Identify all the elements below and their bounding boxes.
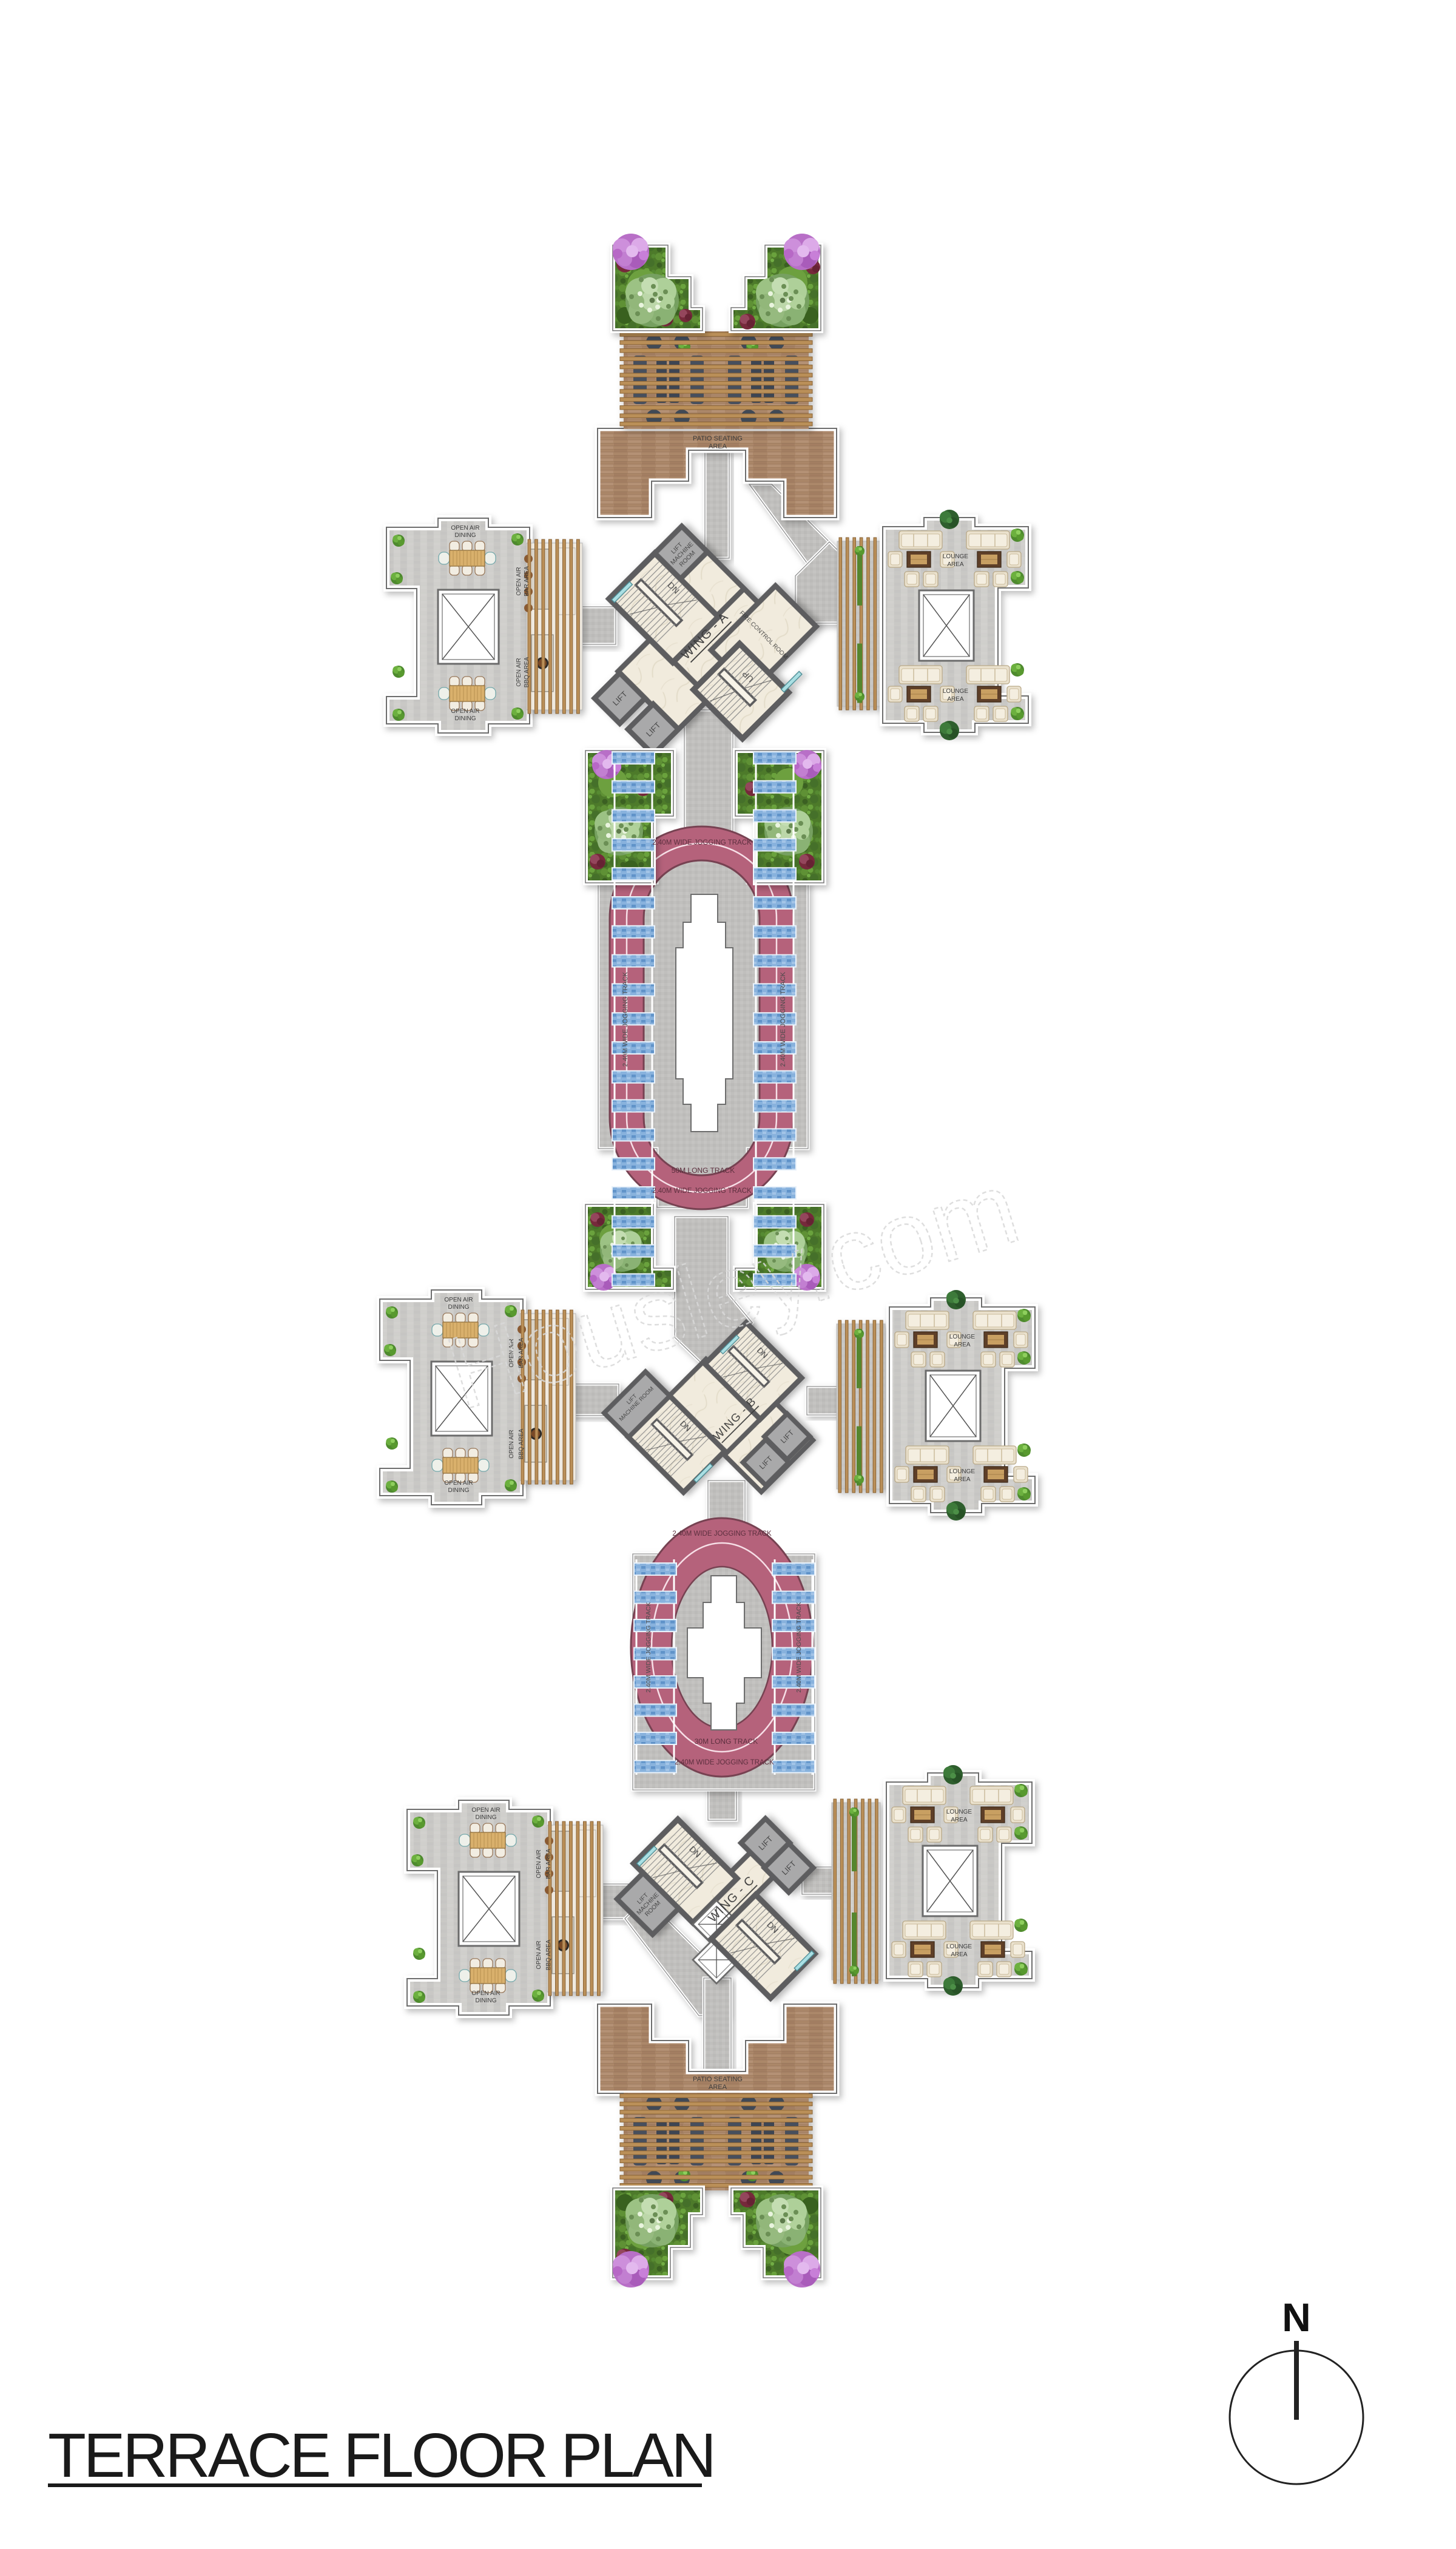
svg-text:TERRACE FLOOR PLAN: TERRACE FLOOR PLAN — [48, 2420, 714, 2490]
svg-text:AREA: AREA — [709, 443, 727, 450]
svg-text:LOUNGE: LOUNGE — [946, 1809, 972, 1815]
svg-text:BAR AREA: BAR AREA — [545, 1849, 552, 1879]
svg-text:LOUNGE: LOUNGE — [949, 1334, 976, 1340]
svg-text:OPEN AIR: OPEN AIR — [451, 525, 479, 532]
svg-text:2.40M WIDE JOGGING TRACK: 2.40M WIDE JOGGING TRACK — [622, 971, 629, 1067]
svg-text:OPEN AIR: OPEN AIR — [444, 1297, 473, 1303]
svg-text:30M LONG TRACK: 30M LONG TRACK — [695, 1737, 758, 1746]
svg-text:LOUNGE: LOUNGE — [946, 1943, 972, 1950]
svg-text:OPEN AIR: OPEN AIR — [516, 658, 522, 686]
svg-text:DINING: DINING — [455, 715, 476, 722]
svg-text:PATIO SEATING: PATIO SEATING — [693, 2076, 743, 2083]
svg-text:LOUNGE: LOUNGE — [943, 688, 969, 695]
svg-text:2.40M WIDE JOGGING TRACK: 2.40M WIDE JOGGING TRACK — [675, 1759, 774, 1766]
svg-text:DINING: DINING — [476, 1997, 497, 2004]
svg-text:N: N — [1282, 2295, 1311, 2340]
svg-text:BBQ AREA: BBQ AREA — [545, 1939, 552, 1970]
svg-text:OPEN AIR: OPEN AIR — [451, 708, 479, 715]
svg-text:BAR AREA: BAR AREA — [524, 566, 530, 596]
svg-text:AREA: AREA — [954, 1342, 971, 1348]
svg-text:BBQ AREA: BBQ AREA — [524, 657, 530, 687]
svg-text:AREA: AREA — [709, 2084, 727, 2091]
svg-text:BBQ AREA: BBQ AREA — [518, 1428, 525, 1459]
svg-text:2.40M WIDE JOGGING TRACK: 2.40M WIDE JOGGING TRACK — [645, 1602, 652, 1692]
svg-text:OPEN AIR: OPEN AIR — [536, 1849, 542, 1878]
svg-text:2.40M WIDE JOGGING TRACK: 2.40M WIDE JOGGING TRACK — [780, 971, 787, 1067]
svg-text:AREA: AREA — [947, 561, 964, 568]
svg-text:OPEN AIR: OPEN AIR — [471, 1990, 500, 1997]
svg-text:DINING: DINING — [455, 532, 476, 539]
svg-text:AREA: AREA — [951, 1817, 968, 1823]
svg-text:2.40M WIDE JOGGING TRACK: 2.40M WIDE JOGGING TRACK — [672, 1530, 772, 1538]
svg-text:OPEN AIR: OPEN AIR — [508, 1430, 515, 1458]
svg-text:DINING: DINING — [448, 1487, 470, 1494]
svg-text:OPEN AIR: OPEN AIR — [516, 567, 522, 595]
svg-text:LOUNGE: LOUNGE — [943, 553, 969, 560]
svg-text:OPEN AIR: OPEN AIR — [444, 1480, 473, 1487]
svg-text:OPEN AIR: OPEN AIR — [471, 1807, 500, 1814]
svg-text:2.40M WIDE JOGGING TRACK: 2.40M WIDE JOGGING TRACK — [795, 1602, 803, 1692]
svg-text:LOUNGE: LOUNGE — [949, 1468, 976, 1475]
svg-text:DINING: DINING — [448, 1304, 470, 1311]
svg-text:AREA: AREA — [951, 1951, 968, 1958]
svg-text:OPEN AIR: OPEN AIR — [536, 1940, 542, 1969]
svg-text:AREA: AREA — [947, 696, 964, 703]
svg-text:AREA: AREA — [954, 1476, 971, 1483]
svg-text:2.40M WIDE JOGGING TRACK: 2.40M WIDE JOGGING TRACK — [652, 1187, 752, 1195]
svg-text:DINING: DINING — [476, 1814, 497, 1821]
svg-text:50M LONG TRACK: 50M LONG TRACK — [672, 1166, 735, 1175]
svg-text:2.40M WIDE JOGGING TRACK: 2.40M WIDE JOGGING TRACK — [652, 839, 752, 846]
svg-text:PATIO SEATING: PATIO SEATING — [693, 435, 743, 442]
